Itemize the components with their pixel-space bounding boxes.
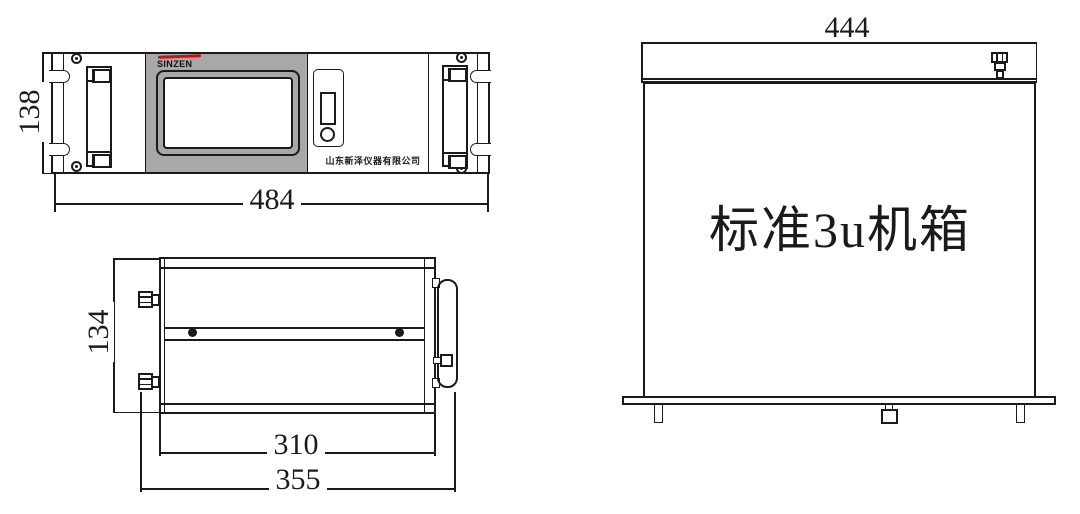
mount-slot-bottom-left bbox=[49, 143, 70, 156]
seam-screw-dot-left bbox=[188, 328, 197, 337]
tube-fitting-stem-icon bbox=[151, 376, 160, 388]
lid-left-edge bbox=[641, 42, 643, 82]
carry-handle-outline bbox=[437, 279, 458, 388]
screw-icon bbox=[456, 52, 467, 63]
front-handle-left-block-top bbox=[92, 69, 112, 83]
lid-top-edge bbox=[641, 42, 1037, 44]
dim-310-ext-left bbox=[159, 414, 161, 456]
front-handle-left-block-bottom bbox=[92, 154, 112, 168]
chassis-label: 标准3u机箱 bbox=[660, 203, 1020, 258]
dim-355-ext-right bbox=[454, 392, 456, 492]
screen-display bbox=[163, 77, 293, 149]
top-fitting-stem-icon bbox=[996, 70, 1004, 79]
foot-left bbox=[654, 404, 663, 423]
dim-134-ext-bottom bbox=[113, 412, 160, 414]
bottom-connector-square bbox=[881, 409, 898, 424]
side-body-outline bbox=[159, 257, 436, 414]
dim-484-ext-left bbox=[54, 174, 56, 212]
screw-pin-icon bbox=[460, 56, 464, 60]
dim-label-355: 355 bbox=[269, 465, 327, 495]
side-seam-line-upper bbox=[165, 327, 424, 329]
side-left-inner-line bbox=[164, 259, 165, 412]
dim-label-134: 134 bbox=[84, 302, 114, 362]
mount-slot-top-left bbox=[49, 70, 70, 83]
dim-label-310: 310 bbox=[267, 430, 325, 460]
base-plate bbox=[622, 396, 1056, 405]
front-handle-right-bar-bottom bbox=[443, 152, 467, 154]
lid-seam-line-upper bbox=[641, 78, 1037, 80]
screw-pin-icon bbox=[75, 165, 79, 169]
power-button-icon bbox=[320, 127, 335, 142]
mount-slot-top-right bbox=[470, 70, 491, 83]
tube-fitting-stem-icon bbox=[151, 294, 160, 306]
side-bottom-inner-line bbox=[161, 403, 435, 405]
connector-square bbox=[440, 354, 453, 367]
dim-label-484: 484 bbox=[243, 185, 301, 215]
top-fitting-detail-line bbox=[996, 53, 998, 62]
dim-label-444: 444 bbox=[816, 13, 878, 43]
side-right-inner-line bbox=[424, 259, 425, 412]
screw-icon bbox=[71, 53, 82, 64]
mount-slot-bottom-right bbox=[470, 143, 491, 156]
dim-label-138: 138 bbox=[15, 82, 45, 142]
dim-310-ext-right bbox=[434, 414, 436, 456]
dim-355-ext-left bbox=[140, 392, 142, 492]
usb-port-icon bbox=[320, 92, 336, 125]
front-panel-seam-right bbox=[428, 54, 429, 172]
top-fitting-detail-line bbox=[1002, 53, 1004, 62]
screw-icon bbox=[71, 161, 82, 172]
front-handle-left-bar-bottom bbox=[87, 151, 111, 153]
dim-134-ext-top bbox=[113, 258, 160, 260]
side-seam-line-lower bbox=[165, 339, 424, 341]
side-top-inner-line bbox=[161, 267, 435, 269]
company-name-text: 山东新泽仪器有限公司 bbox=[323, 157, 423, 166]
front-handle-right-block-top bbox=[448, 68, 468, 82]
front-handle-right-block-bottom bbox=[448, 155, 468, 169]
engineering-drawing-canvas: 138 SINZEN bbox=[0, 0, 1080, 514]
lid-right-edge bbox=[1036, 42, 1038, 82]
dim-484-ext-right bbox=[487, 174, 489, 212]
seam-screw-dot-right bbox=[395, 328, 404, 337]
brand-logo: SINZEN bbox=[157, 60, 192, 69]
foot-right bbox=[1016, 404, 1025, 423]
screw-pin-icon bbox=[75, 57, 79, 61]
